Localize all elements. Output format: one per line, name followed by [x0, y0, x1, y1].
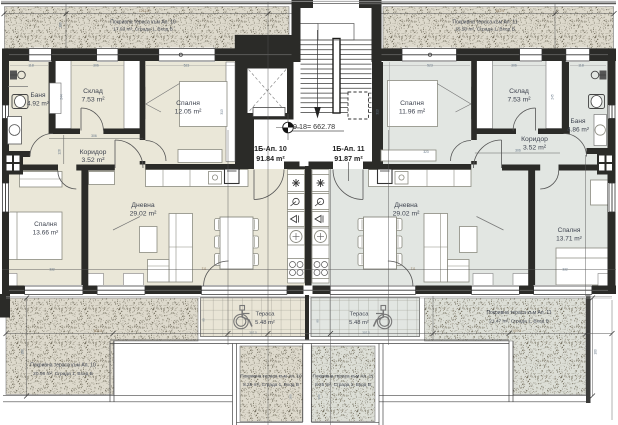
svg-text:311: 311	[411, 267, 416, 271]
svg-text:332: 332	[562, 268, 568, 272]
svg-text:523: 523	[427, 63, 433, 67]
svg-text:306: 306	[515, 149, 521, 153]
svg-text:Покривна тераса към Ап. 10: Покривна тераса към Ап. 10	[30, 362, 96, 368]
svg-text:180: 180	[594, 349, 598, 355]
svg-text:15.50 m², Сграда 1, Вход В: 15.50 m², Сграда 1, Вход В	[455, 27, 515, 33]
svg-text:9.18= 662.78: 9.18= 662.78	[293, 122, 335, 131]
svg-text:612.5: 612.5	[496, 9, 505, 13]
svg-text:12.05 m²: 12.05 m²	[175, 109, 203, 116]
svg-text:7.53 m²: 7.53 m²	[81, 97, 105, 104]
svg-text:523: 523	[184, 63, 190, 67]
svg-text:Покривна тераса към Ап. 11: Покривна тераса към Ап. 11	[312, 373, 373, 378]
svg-text:118: 118	[28, 63, 34, 67]
svg-text:313: 313	[220, 109, 224, 115]
svg-text:1Б-Ап. 10: 1Б-Ап. 10	[254, 145, 287, 153]
svg-text:180: 180	[289, 394, 293, 399]
svg-text:Тераса: Тераса	[255, 312, 275, 318]
svg-text:Коридор: Коридор	[521, 136, 548, 143]
svg-text:8.25 m², Сграда 1, Вход В: 8.25 m², Сграда 1, Вход В	[243, 382, 299, 387]
svg-text:313: 313	[376, 109, 380, 115]
svg-text:Спалня: Спалня	[176, 100, 200, 107]
svg-text:90: 90	[316, 319, 320, 323]
svg-text:5.48 m²: 5.48 m²	[349, 320, 369, 326]
svg-text:Дневна: Дневна	[131, 202, 155, 209]
svg-text:306: 306	[91, 134, 97, 138]
svg-text:29.02 m²: 29.02 m²	[393, 211, 421, 218]
svg-text:11.96 m²: 11.96 m²	[399, 109, 426, 116]
svg-text:Тераса: Тераса	[349, 312, 369, 318]
svg-text:332: 332	[49, 268, 55, 272]
svg-text:180: 180	[317, 394, 321, 399]
svg-text:13.71 m²: 13.71 m²	[556, 236, 582, 243]
svg-text:244: 244	[60, 94, 64, 100]
svg-text:180: 180	[59, 22, 63, 28]
svg-text:13.66 m²: 13.66 m²	[33, 230, 59, 237]
svg-text:17.93 m², Сграда 1, Вход В: 17.93 m², Сграда 1, Вход В	[113, 27, 173, 33]
svg-text:20.98 m², Сграда 1, Вход В: 20.98 m², Сграда 1, Вход В	[33, 371, 93, 377]
svg-text:Спалня: Спалня	[34, 221, 57, 228]
svg-text:118: 118	[578, 63, 584, 67]
svg-text:Дневна: Дневна	[394, 202, 418, 209]
svg-text:1Б-Ап. 11: 1Б-Ап. 11	[332, 145, 364, 153]
svg-text:1212.5: 1212.5	[139, 9, 149, 13]
svg-text:307.5: 307.5	[249, 330, 257, 334]
svg-text:306: 306	[511, 63, 517, 67]
svg-text:Спалня: Спалня	[558, 227, 581, 234]
svg-text:Коридор: Коридор	[80, 149, 107, 156]
svg-text:29.02 m²: 29.02 m²	[130, 211, 158, 218]
svg-text:90: 90	[202, 318, 206, 322]
svg-text:21.47 m², Сграда 1, Вход В: 21.47 m², Сграда 1, Вход В	[489, 318, 549, 324]
svg-text:Покривна тераса към Ап. 11: Покривна тераса към Ап. 11	[452, 20, 517, 26]
svg-text:306: 306	[93, 63, 99, 67]
svg-text:91.87 m²: 91.87 m²	[334, 155, 363, 163]
svg-text:Покривна тераса към Ап. 10: Покривна тераса към Ап. 10	[240, 373, 302, 378]
svg-text:Баня: Баня	[31, 92, 46, 99]
svg-text:307.5: 307.5	[362, 330, 370, 334]
svg-text:180: 180	[21, 349, 25, 355]
svg-text:Склад: Склад	[509, 88, 529, 95]
svg-text:497.5: 497.5	[513, 329, 522, 333]
svg-text:91.84 m²: 91.84 m²	[256, 155, 285, 163]
svg-text:5.48 m²: 5.48 m²	[255, 320, 275, 326]
svg-text:245: 245	[551, 94, 555, 100]
svg-text:Баня: Баня	[571, 118, 586, 125]
svg-text:Покривна тераса към Ап. 10: Покривна тераса към Ап. 10	[110, 20, 176, 26]
svg-text:3.52 m²: 3.52 m²	[523, 145, 547, 152]
svg-text:8.25 m², Сграда 1, Вход В: 8.25 m², Сграда 1, Вход В	[315, 382, 371, 387]
svg-text:Склад: Склад	[83, 88, 103, 95]
svg-text:4.92 m²: 4.92 m²	[27, 101, 50, 108]
svg-text:7.53 m²: 7.53 m²	[507, 97, 531, 104]
svg-text:602.5: 602.5	[94, 329, 103, 333]
svg-text:323: 323	[423, 150, 429, 154]
svg-text:3.52 m²: 3.52 m²	[81, 157, 105, 164]
svg-text:128: 128	[58, 149, 62, 155]
svg-text:311: 311	[202, 267, 207, 271]
svg-text:Покривна тераса към Ап. 11: Покривна тераса към Ап. 11	[486, 310, 551, 316]
svg-text:4.86 m²: 4.86 m²	[567, 127, 590, 134]
svg-text:Спалня: Спалня	[400, 100, 424, 107]
